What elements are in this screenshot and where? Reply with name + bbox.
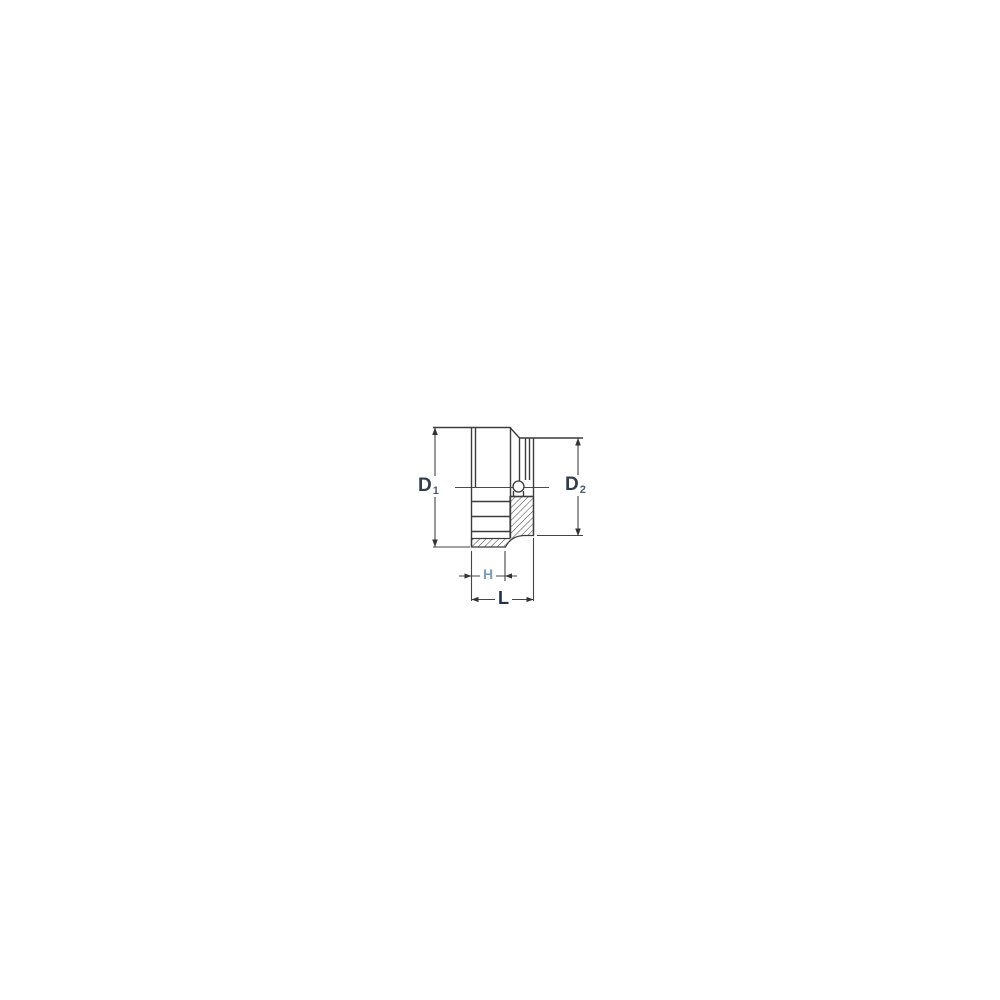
d2-subscript: 2	[580, 484, 586, 496]
arrowhead-down-icon	[575, 529, 581, 537]
d2-letter: D	[565, 474, 579, 495]
socket-section-hatch	[472, 497, 534, 548]
l-letter: L	[498, 588, 509, 608]
dimension-label-d1: D1	[415, 476, 442, 497]
ball-detent-hole	[513, 481, 524, 492]
dimension-label-h: H	[480, 567, 496, 582]
d1-letter: D	[418, 475, 432, 496]
drawing-canvas: D1 D2 H L	[0, 0, 1000, 1000]
arrowhead-up-icon	[432, 428, 438, 436]
d1-subscript: 1	[433, 485, 439, 497]
arrowhead-down-icon	[432, 540, 438, 548]
dimension-label-d2: D2	[562, 475, 589, 496]
arrowhead-left-icon	[505, 573, 512, 578]
h-letter: H	[483, 566, 493, 582]
arrowhead-up-icon	[575, 438, 581, 446]
ball-hole-circle	[513, 481, 524, 492]
arrowhead-right-icon	[527, 597, 534, 602]
arrowhead-left-icon	[472, 597, 479, 602]
socket-cross-section-diagram	[0, 0, 1000, 1000]
arrowhead-right-icon	[465, 573, 472, 578]
shoulder-chamfer	[510, 428, 520, 439]
section-region	[472, 497, 534, 548]
dimension-label-l: L	[495, 589, 512, 609]
